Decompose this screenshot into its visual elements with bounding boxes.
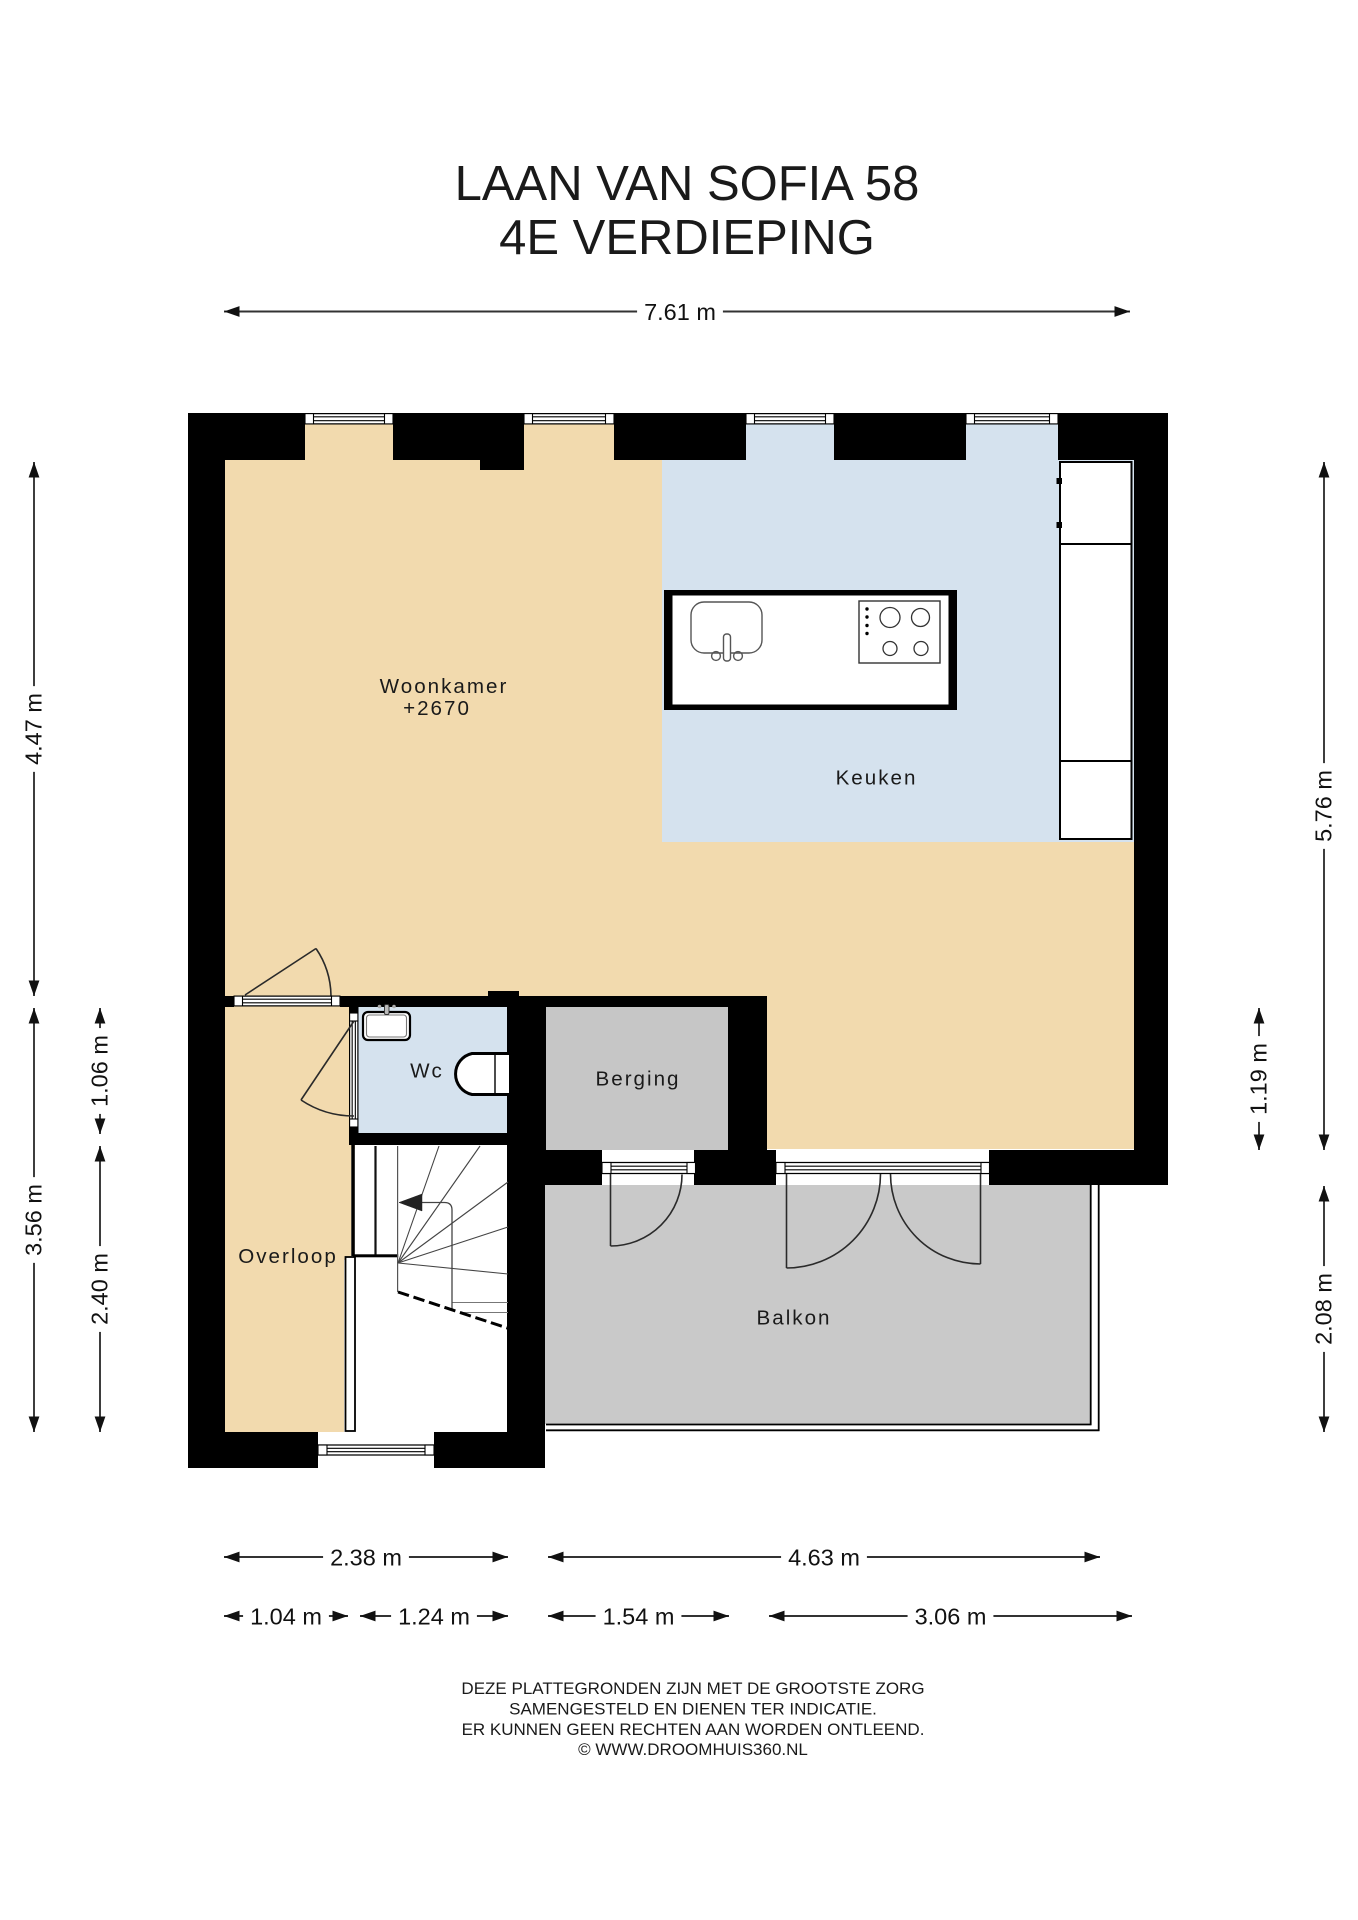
svg-text:SAMENGESTELD EN DIENEN TER IND: SAMENGESTELD EN DIENEN TER INDICATIE. (509, 1700, 877, 1719)
svg-text:Woonkamer: Woonkamer (380, 675, 509, 698)
svg-text:2.08 m: 2.08 m (1311, 1273, 1337, 1345)
svg-text:4.47 m: 4.47 m (21, 693, 47, 765)
svg-text:© WWW.DROOMHUIS360.NL: © WWW.DROOMHUIS360.NL (578, 1740, 808, 1759)
svg-text:1.06 m: 1.06 m (87, 1035, 113, 1107)
svg-text:+2670: +2670 (403, 697, 471, 720)
svg-text:3.56 m: 3.56 m (21, 1184, 47, 1256)
svg-text:2.40 m: 2.40 m (87, 1253, 113, 1325)
svg-text:Keuken: Keuken (836, 767, 918, 790)
svg-text:LAAN VAN SOFIA 58: LAAN VAN SOFIA 58 (455, 157, 920, 211)
svg-text:1.24 m: 1.24 m (398, 1603, 470, 1629)
svg-text:3.06 m: 3.06 m (915, 1603, 987, 1629)
svg-text:1.19 m: 1.19 m (1246, 1043, 1272, 1115)
svg-text:4.63 m: 4.63 m (788, 1544, 860, 1570)
svg-text:Berging: Berging (596, 1068, 681, 1091)
svg-text:2.38 m: 2.38 m (330, 1544, 402, 1570)
svg-text:Balkon: Balkon (757, 1307, 832, 1330)
svg-text:1.54 m: 1.54 m (603, 1603, 675, 1629)
svg-text:5.76 m: 5.76 m (1311, 770, 1337, 842)
svg-text:4E VERDIEPING: 4E VERDIEPING (499, 211, 875, 265)
svg-text:ER KUNNEN GEEN RECHTEN AAN WOR: ER KUNNEN GEEN RECHTEN AAN WORDEN ONTLEE… (462, 1720, 925, 1739)
svg-text:Overloop: Overloop (238, 1245, 338, 1268)
svg-text:1.04 m: 1.04 m (250, 1603, 322, 1629)
svg-text:Wc: Wc (410, 1059, 444, 1082)
svg-text:DEZE PLATTEGRONDEN ZIJN MET DE: DEZE PLATTEGRONDEN ZIJN MET DE GROOTSTE … (461, 1679, 924, 1698)
svg-text:7.61 m: 7.61 m (644, 299, 716, 325)
